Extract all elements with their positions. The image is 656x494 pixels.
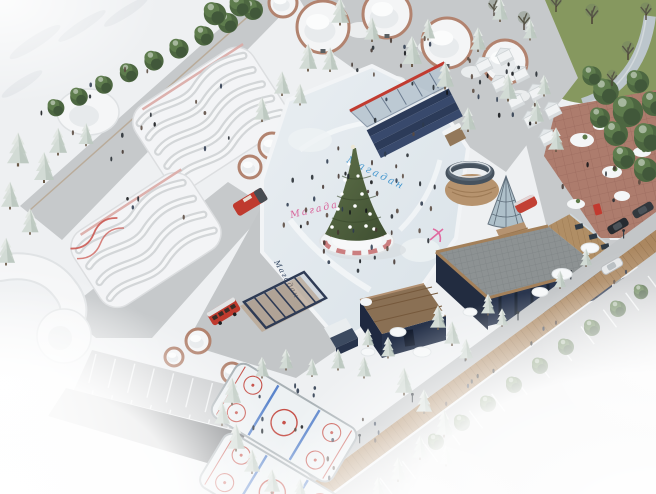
person-dot	[331, 438, 334, 442]
person-dot	[121, 133, 124, 138]
person-dot	[204, 111, 207, 115]
person-dot	[362, 418, 364, 422]
person-dot	[370, 180, 373, 184]
person-dot	[374, 256, 376, 260]
person-dot	[204, 146, 206, 151]
person-dot	[472, 89, 475, 93]
person-dot	[347, 174, 349, 179]
person-dot	[313, 196, 315, 201]
person-dot	[154, 122, 156, 127]
person-dot	[396, 209, 399, 214]
person-dot	[359, 259, 361, 263]
person-dot	[506, 69, 508, 74]
person-dot	[419, 181, 421, 186]
dome-tent	[269, 0, 297, 17]
person-dot	[374, 422, 376, 426]
person-dot	[385, 98, 387, 102]
person-dot	[296, 388, 299, 393]
person-dot	[349, 210, 351, 215]
person-dot	[469, 59, 471, 64]
person-dot	[351, 62, 353, 66]
person-dot	[422, 122, 424, 127]
person-dot	[542, 327, 544, 331]
person-dot	[376, 191, 379, 196]
person-dot	[534, 103, 536, 107]
person-dot	[393, 259, 395, 264]
person-dot	[530, 341, 532, 345]
person-dot	[471, 379, 473, 383]
person-dot	[562, 184, 564, 189]
person-dot	[353, 229, 355, 233]
dome-tent	[239, 156, 261, 178]
person-dot	[306, 221, 308, 225]
person-dot	[429, 42, 431, 47]
person-dot	[326, 159, 328, 164]
person-dot	[286, 203, 288, 207]
person-dot	[535, 71, 537, 77]
person-dot	[294, 383, 296, 388]
person-dot	[471, 74, 473, 79]
person-dot	[445, 402, 447, 406]
person-dot	[326, 213, 329, 218]
person-dot	[477, 374, 479, 378]
person-dot	[386, 246, 388, 251]
person-dot	[374, 118, 377, 123]
person-dot	[395, 164, 397, 168]
person-dot	[391, 214, 394, 219]
person-dot	[612, 198, 615, 202]
person-dot	[261, 417, 263, 422]
person-dot	[613, 166, 616, 171]
person-dot	[404, 51, 406, 56]
person-dot	[406, 153, 409, 157]
person-dot	[110, 157, 112, 162]
person-dot	[301, 425, 304, 429]
person-dot	[479, 80, 481, 85]
person-dot	[638, 180, 641, 185]
person-dot	[132, 205, 134, 209]
person-dot	[625, 270, 627, 274]
person-dot	[498, 113, 501, 118]
person-dot	[342, 207, 344, 212]
person-dot	[374, 438, 376, 442]
person-dot	[378, 430, 380, 435]
person-dot	[402, 174, 404, 179]
person-dot	[314, 386, 317, 390]
person-dot	[390, 38, 392, 43]
person-dot	[313, 393, 315, 397]
person-dot	[261, 429, 263, 434]
person-dot	[492, 369, 494, 373]
person-dot	[259, 395, 261, 399]
person-dot	[124, 67, 126, 72]
person-dot	[555, 321, 557, 325]
person-dot	[195, 100, 197, 104]
person-dot	[220, 83, 222, 88]
person-dot	[72, 130, 74, 135]
person-dot	[512, 112, 514, 117]
person-dot	[375, 228, 377, 232]
person-dot	[300, 225, 302, 229]
person-dot	[337, 230, 339, 235]
person-dot	[327, 260, 330, 264]
person-dot	[333, 466, 335, 470]
person-dot	[412, 132, 414, 136]
person-dot	[365, 208, 367, 213]
person-dot	[228, 136, 230, 140]
person-dot	[122, 150, 124, 154]
person-dot	[403, 45, 406, 49]
person-dot	[400, 64, 402, 68]
park-aerial-render: Магадан Магадан Магадан	[0, 0, 656, 494]
person-dot	[367, 190, 369, 194]
person-dot	[418, 228, 420, 233]
person-dot	[89, 83, 92, 88]
person-dot	[338, 174, 340, 179]
person-dot	[357, 269, 360, 273]
person-dot	[137, 196, 139, 202]
person-dot	[586, 162, 588, 167]
person-dot	[434, 185, 436, 190]
person-dot	[496, 97, 498, 102]
person-dot	[41, 111, 43, 116]
person-dot	[395, 178, 397, 183]
person-dot	[424, 36, 426, 41]
person-dot	[605, 171, 607, 177]
person-dot	[508, 62, 510, 66]
person-dot	[89, 95, 91, 99]
person-dot	[311, 175, 314, 180]
person-dot	[328, 476, 330, 481]
person-dot	[327, 456, 330, 461]
person-dot	[322, 185, 324, 189]
person-dot	[140, 126, 142, 131]
person-dot	[511, 72, 514, 76]
person-dot	[478, 94, 480, 99]
dome-tent	[186, 329, 210, 353]
person-dot	[344, 172, 346, 176]
person-dot	[373, 72, 375, 77]
person-dot	[337, 146, 339, 150]
person-dot	[411, 82, 413, 86]
person-dot	[420, 201, 423, 205]
person-dot	[517, 66, 520, 70]
person-dot	[356, 68, 358, 72]
person-dot	[371, 244, 373, 250]
person-dot	[446, 90, 448, 95]
person-dot	[323, 249, 325, 254]
person-dot	[294, 428, 296, 432]
person-dot	[323, 240, 326, 245]
person-dot	[371, 160, 373, 165]
person-dot	[183, 215, 185, 220]
person-dot	[305, 207, 308, 212]
tree-topper	[351, 145, 355, 149]
person-dot	[430, 206, 432, 211]
person-dot	[433, 85, 435, 90]
person-dot	[487, 73, 489, 78]
person-dot	[613, 280, 615, 284]
person-dot	[467, 384, 469, 388]
person-dot	[529, 122, 531, 126]
person-dot	[252, 425, 254, 430]
person-dot	[146, 69, 148, 73]
person-dot	[126, 197, 129, 201]
person-dot	[391, 230, 393, 235]
person-dot	[150, 113, 152, 118]
person-dot	[427, 238, 429, 243]
person-dot	[384, 151, 387, 156]
person-dot	[283, 222, 285, 228]
dome-tent	[165, 348, 183, 366]
person-dot	[291, 178, 294, 183]
site-plan: Магадан Магадан Магадан	[0, 0, 656, 494]
person-dot	[372, 46, 375, 50]
